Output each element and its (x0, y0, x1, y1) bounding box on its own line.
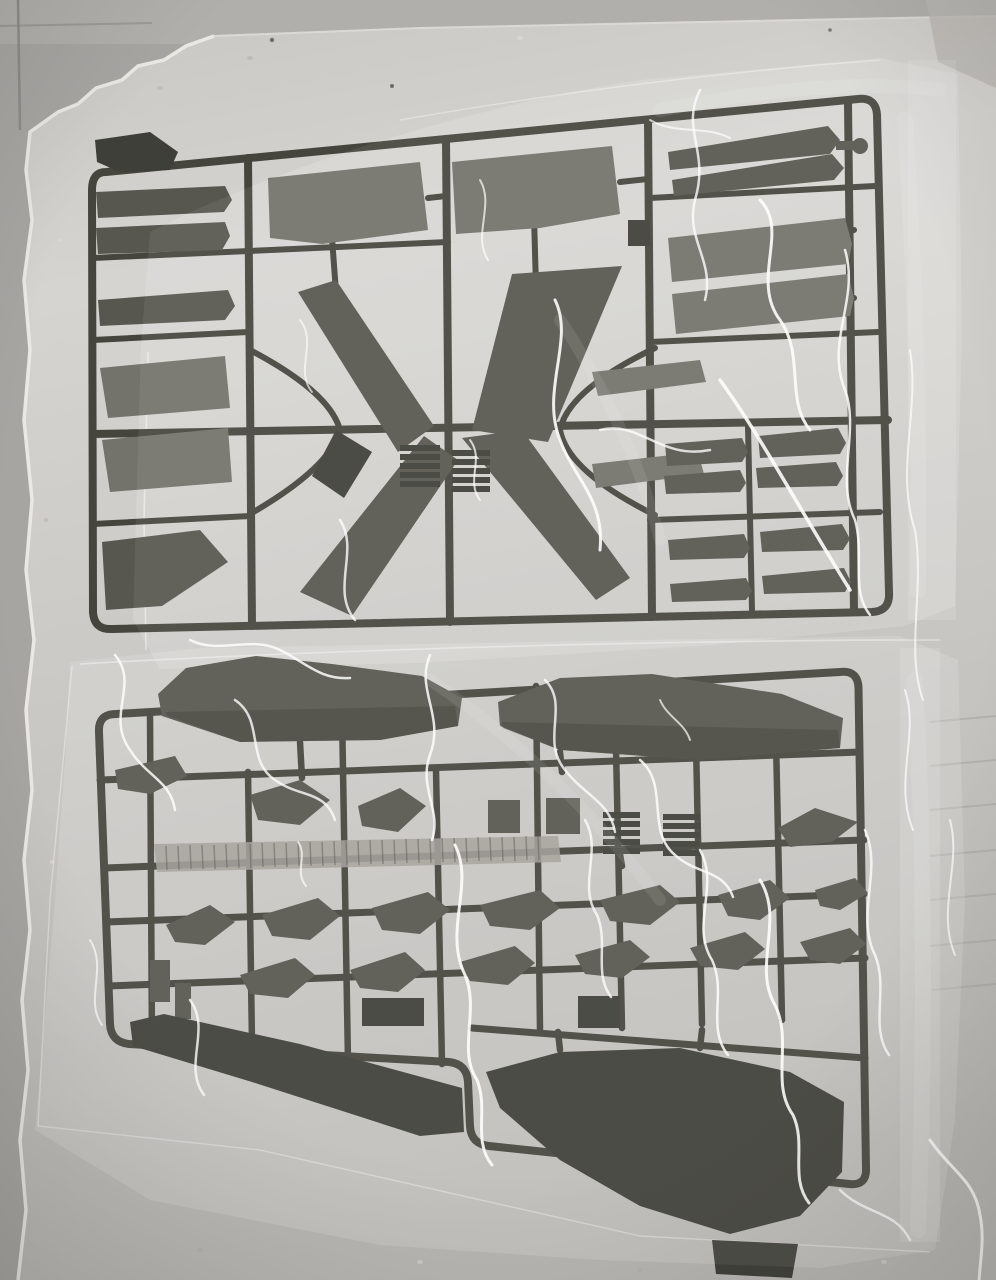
photo-canvas (0, 0, 996, 1280)
model-kit-photo (0, 0, 996, 1280)
vignette (0, 0, 996, 1280)
